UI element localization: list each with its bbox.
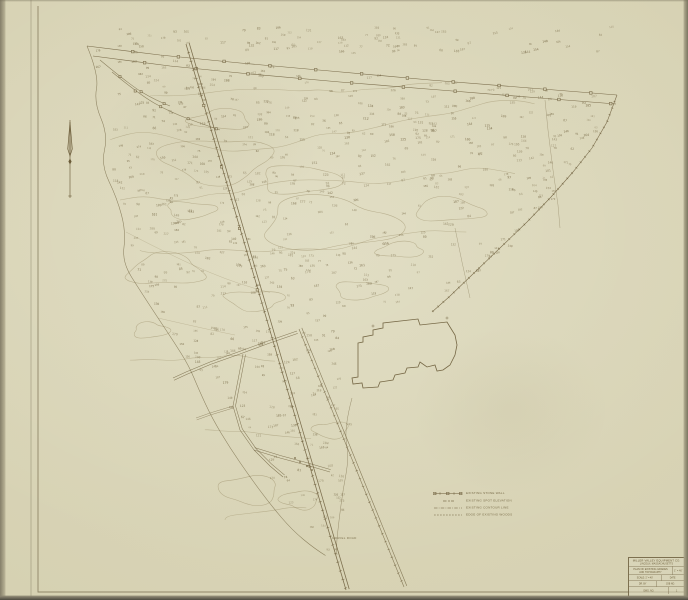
- svg-text:119: 119: [571, 105, 577, 109]
- svg-text:119: 119: [308, 46, 313, 50]
- svg-text:117: 117: [290, 371, 296, 375]
- svg-text:110: 110: [242, 280, 248, 284]
- svg-text:89: 89: [264, 121, 268, 125]
- svg-text:148: 148: [542, 39, 548, 44]
- svg-text:179: 179: [551, 197, 556, 201]
- svg-text:169: 169: [208, 160, 213, 163]
- svg-text:81: 81: [123, 203, 127, 206]
- svg-text:128: 128: [317, 146, 322, 150]
- svg-text:134: 134: [145, 74, 151, 79]
- svg-text:68: 68: [431, 173, 435, 177]
- svg-text:125: 125: [351, 52, 356, 55]
- svg-text:160: 160: [329, 347, 335, 352]
- svg-text:178: 178: [150, 158, 155, 162]
- svg-text:149: 149: [173, 213, 179, 218]
- svg-text:167: 167: [444, 289, 450, 293]
- svg-text:166: 166: [339, 49, 345, 53]
- svg-text:76: 76: [470, 151, 474, 155]
- svg-text:111: 111: [425, 112, 431, 117]
- svg-text:98: 98: [291, 173, 295, 177]
- svg-text:85: 85: [275, 190, 279, 194]
- svg-text:171: 171: [381, 122, 386, 126]
- svg-text:63: 63: [457, 280, 461, 284]
- svg-text:122: 122: [287, 30, 292, 35]
- svg-text:76: 76: [192, 269, 196, 273]
- svg-text:185: 185: [401, 169, 407, 174]
- svg-text:160: 160: [310, 526, 315, 529]
- svg-text:170: 170: [304, 81, 309, 85]
- svg-text:165: 165: [384, 163, 390, 168]
- svg-text:179: 179: [223, 380, 229, 384]
- svg-text:136: 136: [521, 50, 527, 55]
- svg-text:105: 105: [489, 183, 495, 187]
- legend-row: EXISTING SPOT ELEVATION: [433, 498, 551, 505]
- svg-text:99: 99: [543, 164, 547, 168]
- svg-text:122: 122: [529, 111, 534, 114]
- svg-text:64: 64: [599, 33, 603, 37]
- svg-text:168: 168: [298, 264, 303, 268]
- title-block-scale-value: 1" = 40': [674, 569, 682, 572]
- svg-text:143: 143: [269, 280, 275, 285]
- svg-text:144: 144: [255, 365, 260, 369]
- legend-label: EXISTING SPOT ELEVATION: [466, 500, 512, 503]
- svg-text:164: 164: [429, 29, 434, 32]
- svg-text:75: 75: [197, 149, 201, 153]
- svg-text:96: 96: [275, 175, 279, 178]
- svg-text:175: 175: [243, 325, 248, 329]
- svg-text:111: 111: [171, 158, 177, 163]
- title-block-company-line2: LINCOLN, MASSACHUSETTS: [640, 562, 673, 565]
- svg-text:132: 132: [451, 242, 457, 246]
- svg-text:72: 72: [354, 266, 358, 270]
- svg-text:123: 123: [240, 404, 246, 408]
- svg-text:66: 66: [152, 126, 156, 130]
- svg-text:86: 86: [247, 41, 251, 45]
- svg-text:180: 180: [460, 201, 465, 205]
- svg-text:158: 158: [139, 44, 144, 48]
- svg-text:155: 155: [133, 41, 139, 45]
- svg-text:183: 183: [341, 37, 347, 42]
- svg-text:67: 67: [283, 413, 287, 417]
- svg-text:159: 159: [178, 101, 184, 106]
- svg-text:120: 120: [386, 108, 391, 112]
- svg-text:71: 71: [128, 153, 132, 157]
- svg-text:169: 169: [160, 311, 165, 315]
- svg-text:73: 73: [263, 208, 267, 212]
- svg-text:166: 166: [514, 143, 520, 147]
- svg-text:127: 127: [472, 117, 477, 120]
- spot-elevation-symbol: [433, 499, 466, 504]
- svg-text:86: 86: [529, 43, 533, 46]
- svg-text:67: 67: [241, 415, 245, 419]
- stone-wall-line-symbol: [433, 490, 466, 496]
- svg-text:168: 168: [291, 201, 297, 205]
- legend-label: EXISTING CONTOUR LINE: [466, 507, 509, 510]
- svg-text:80: 80: [253, 86, 257, 90]
- svg-text:175: 175: [310, 264, 315, 268]
- svg-text:179: 179: [318, 479, 324, 483]
- svg-text:122: 122: [336, 496, 341, 499]
- svg-text:146: 146: [563, 129, 569, 134]
- svg-text:109: 109: [156, 203, 162, 207]
- svg-text:159: 159: [549, 112, 555, 117]
- svg-text:137: 137: [359, 171, 365, 176]
- legend-row: EXISTING CONTOUR LINE: [433, 505, 551, 512]
- svg-text:126: 126: [333, 492, 339, 497]
- svg-text:138: 138: [257, 112, 263, 116]
- svg-text:85: 85: [146, 101, 150, 105]
- svg-text:136: 136: [332, 203, 338, 208]
- svg-text:142: 142: [135, 102, 141, 106]
- svg-text:96: 96: [397, 49, 401, 53]
- svg-text:183: 183: [454, 49, 460, 53]
- svg-text:103: 103: [399, 105, 405, 109]
- svg-text:83: 83: [205, 37, 209, 40]
- svg-text:85: 85: [179, 267, 183, 271]
- svg-text:88: 88: [112, 168, 116, 172]
- svg-text:69: 69: [342, 304, 346, 308]
- svg-text:102: 102: [138, 72, 143, 76]
- svg-text:164: 164: [467, 122, 473, 127]
- svg-text:93: 93: [291, 303, 295, 307]
- svg-text:109: 109: [501, 114, 507, 119]
- svg-text:166: 166: [275, 25, 281, 30]
- svg-text:154: 154: [556, 39, 562, 44]
- svg-text:172: 172: [477, 151, 482, 155]
- svg-text:87: 87: [467, 41, 471, 46]
- svg-text:186: 186: [117, 60, 122, 64]
- svg-text:107: 107: [431, 129, 437, 133]
- svg-text:162: 162: [255, 41, 261, 46]
- svg-text:115: 115: [247, 179, 253, 184]
- svg-text:167: 167: [460, 47, 466, 52]
- svg-text:77: 77: [359, 45, 363, 49]
- svg-text:182: 182: [174, 228, 179, 232]
- svg-text:182: 182: [255, 171, 261, 175]
- svg-text:180: 180: [330, 516, 335, 519]
- svg-text:67: 67: [563, 118, 567, 123]
- svg-text:179: 179: [485, 254, 491, 258]
- svg-text:82: 82: [182, 222, 186, 226]
- svg-text:151: 151: [311, 161, 317, 165]
- svg-text:169: 169: [128, 175, 134, 180]
- svg-text:63: 63: [358, 164, 362, 168]
- svg-text:65: 65: [339, 121, 343, 125]
- svg-text:149: 149: [233, 241, 238, 245]
- svg-text:119: 119: [200, 122, 206, 126]
- svg-text:106: 106: [180, 144, 185, 148]
- svg-text:186: 186: [593, 129, 599, 133]
- svg-text:186: 186: [193, 330, 198, 333]
- svg-text:124: 124: [508, 27, 513, 31]
- svg-text:131: 131: [248, 135, 253, 139]
- svg-text:164: 164: [532, 183, 537, 187]
- svg-text:186: 186: [189, 85, 195, 90]
- svg-text:90: 90: [136, 202, 140, 206]
- svg-text:62: 62: [550, 175, 554, 179]
- svg-text:178: 178: [275, 128, 280, 132]
- svg-text:154: 154: [221, 114, 227, 118]
- boundary-traverse-lines: [87, 46, 617, 130]
- title-block-job-cell: JOB NO.: [666, 583, 675, 586]
- svg-text:63: 63: [186, 63, 190, 67]
- svg-text:90: 90: [164, 91, 168, 95]
- svg-text:66: 66: [439, 48, 443, 53]
- svg-text:123: 123: [539, 194, 544, 197]
- svg-text:77: 77: [318, 259, 321, 263]
- svg-text:124: 124: [383, 35, 389, 39]
- svg-text:75: 75: [278, 269, 282, 273]
- svg-text:70: 70: [525, 146, 529, 150]
- svg-text:182: 182: [283, 238, 288, 241]
- svg-text:120: 120: [348, 94, 353, 98]
- svg-text:184: 184: [446, 282, 451, 285]
- svg-text:134: 134: [277, 285, 283, 289]
- svg-text:155: 155: [423, 184, 428, 188]
- svg-text:155: 155: [204, 170, 210, 175]
- svg-text:83: 83: [193, 319, 197, 323]
- svg-text:103: 103: [253, 265, 258, 268]
- svg-text:161: 161: [260, 69, 266, 73]
- svg-text:140: 140: [507, 244, 513, 249]
- svg-text:98: 98: [214, 117, 218, 121]
- svg-text:155: 155: [451, 116, 456, 120]
- svg-text:111: 111: [202, 305, 208, 310]
- svg-text:75: 75: [309, 200, 313, 204]
- svg-text:62: 62: [136, 155, 140, 159]
- svg-text:96: 96: [512, 188, 516, 192]
- svg-text:150: 150: [280, 33, 286, 37]
- svg-text:165: 165: [314, 339, 319, 342]
- svg-text:84: 84: [325, 446, 329, 449]
- svg-text:83: 83: [196, 304, 200, 308]
- svg-text:177: 177: [300, 199, 306, 204]
- svg-text:142: 142: [117, 181, 123, 185]
- svg-text:185: 185: [447, 177, 452, 181]
- svg-text:107: 107: [431, 94, 437, 99]
- svg-text:176: 176: [280, 155, 285, 159]
- svg-text:186: 186: [358, 101, 364, 105]
- svg-text:64: 64: [248, 426, 252, 429]
- svg-text:126: 126: [223, 186, 228, 190]
- svg-text:136: 136: [348, 260, 354, 265]
- svg-text:155: 155: [299, 138, 305, 142]
- svg-text:130: 130: [334, 113, 339, 117]
- svg-text:121: 121: [551, 143, 557, 148]
- svg-text:142: 142: [361, 148, 366, 152]
- svg-text:113: 113: [516, 158, 522, 162]
- svg-text:89: 89: [245, 48, 249, 52]
- svg-text:85: 85: [174, 285, 178, 289]
- svg-text:149: 149: [261, 179, 267, 184]
- svg-text:81: 81: [297, 468, 301, 472]
- svg-text:75: 75: [283, 267, 287, 271]
- svg-text:82: 82: [210, 332, 214, 336]
- svg-text:110: 110: [410, 263, 416, 268]
- svg-text:180: 180: [250, 291, 256, 295]
- svg-text:120: 120: [526, 176, 531, 181]
- svg-text:80: 80: [242, 192, 246, 196]
- svg-text:147: 147: [332, 129, 337, 133]
- svg-text:168: 168: [319, 445, 325, 450]
- svg-text:110: 110: [558, 93, 564, 97]
- svg-text:64: 64: [287, 478, 291, 482]
- svg-text:131: 131: [418, 120, 424, 124]
- woods-edge-symbol: [433, 513, 466, 518]
- svg-text:121: 121: [256, 433, 262, 437]
- svg-text:75: 75: [131, 36, 135, 40]
- svg-text:173: 173: [356, 284, 362, 289]
- svg-text:86: 86: [451, 111, 455, 115]
- svg-text:154: 154: [310, 114, 315, 118]
- svg-text:63: 63: [345, 222, 349, 226]
- svg-text:106: 106: [264, 130, 269, 134]
- svg-text:109: 109: [366, 282, 372, 286]
- svg-text:174: 174: [306, 268, 312, 273]
- title-block-sheet-number: 1: [676, 589, 677, 592]
- svg-text:76: 76: [392, 157, 396, 161]
- svg-text:65: 65: [243, 171, 247, 175]
- svg-text:173: 173: [309, 253, 315, 258]
- svg-text:69: 69: [479, 242, 483, 246]
- svg-text:105: 105: [347, 422, 353, 427]
- svg-text:71: 71: [310, 443, 314, 447]
- svg-text:156: 156: [383, 241, 389, 245]
- svg-text:122: 122: [278, 245, 284, 250]
- svg-text:181: 181: [181, 240, 186, 244]
- svg-text:112: 112: [344, 43, 349, 47]
- svg-text:90: 90: [285, 152, 289, 156]
- svg-text:167: 167: [95, 65, 101, 69]
- svg-text:80: 80: [147, 80, 151, 84]
- svg-text:150: 150: [306, 333, 312, 337]
- svg-text:186: 186: [389, 124, 395, 128]
- svg-text:173: 173: [173, 193, 179, 198]
- svg-text:62: 62: [256, 149, 260, 153]
- svg-text:89: 89: [262, 373, 266, 377]
- svg-text:80: 80: [227, 281, 231, 285]
- svg-text:79: 79: [223, 139, 227, 143]
- svg-text:181: 181: [216, 229, 222, 233]
- svg-text:99: 99: [270, 155, 274, 159]
- svg-text:134: 134: [367, 104, 373, 109]
- svg-text:118: 118: [269, 132, 275, 136]
- svg-text:74: 74: [487, 88, 491, 92]
- svg-text:102: 102: [195, 137, 200, 141]
- svg-text:122: 122: [333, 386, 338, 389]
- svg-text:163: 163: [344, 141, 349, 145]
- svg-text:137: 137: [464, 185, 469, 189]
- svg-text:76: 76: [322, 119, 326, 123]
- svg-text:180: 180: [464, 137, 470, 142]
- svg-text:155: 155: [174, 241, 179, 245]
- svg-text:65: 65: [256, 101, 260, 105]
- svg-text:143: 143: [552, 137, 558, 141]
- svg-text:99: 99: [229, 74, 233, 78]
- svg-text:178: 178: [144, 289, 150, 294]
- svg-text:179: 179: [172, 332, 178, 337]
- svg-text:117: 117: [220, 291, 226, 295]
- svg-text:167: 167: [236, 284, 241, 287]
- svg-text:117: 117: [220, 40, 226, 44]
- svg-text:146: 146: [245, 417, 251, 421]
- svg-text:113: 113: [492, 31, 498, 36]
- svg-text:131: 131: [396, 35, 401, 39]
- svg-text:97: 97: [491, 142, 495, 146]
- svg-text:168: 168: [200, 162, 206, 166]
- svg-text:87: 87: [596, 49, 600, 53]
- svg-text:159: 159: [255, 329, 261, 334]
- svg-text:127: 127: [219, 250, 225, 255]
- svg-text:150: 150: [160, 155, 166, 160]
- svg-text:183: 183: [113, 127, 119, 131]
- spot-elevation-marks: 1141441151831691069976821021141796210111…: [95, 25, 614, 552]
- svg-text:102: 102: [292, 357, 298, 362]
- svg-text:166: 166: [161, 66, 166, 70]
- svg-text:125: 125: [400, 138, 406, 142]
- svg-text:66: 66: [513, 154, 517, 158]
- svg-text:136: 136: [338, 474, 344, 478]
- svg-text:130: 130: [344, 135, 350, 140]
- svg-text:63: 63: [291, 276, 295, 280]
- title-block-drawing-title-line2: AND TOPOGRAPHY: [639, 571, 662, 574]
- svg-text:187: 187: [374, 280, 379, 283]
- svg-text:154: 154: [565, 44, 571, 49]
- svg-text:78: 78: [160, 170, 164, 174]
- svg-text:184: 184: [317, 210, 323, 214]
- svg-text:183: 183: [243, 125, 249, 130]
- svg-text:110: 110: [316, 388, 322, 392]
- svg-text:74: 74: [161, 119, 165, 123]
- svg-text:120: 120: [252, 255, 258, 260]
- svg-text:185: 185: [305, 258, 310, 262]
- svg-text:80: 80: [141, 262, 145, 266]
- svg-text:149: 149: [586, 119, 591, 123]
- road-label: GRAVEL ROAD: [332, 536, 357, 540]
- scanned-survey-sheet: 1141441151831691069976821021141796210111…: [0, 0, 688, 600]
- svg-text:153: 153: [363, 273, 369, 278]
- svg-text:64: 64: [285, 135, 289, 139]
- svg-text:131: 131: [306, 28, 312, 33]
- svg-text:80: 80: [293, 116, 297, 120]
- svg-text:101: 101: [152, 213, 158, 217]
- svg-text:118: 118: [286, 115, 291, 118]
- svg-text:116: 116: [266, 100, 272, 105]
- svg-text:150: 150: [389, 133, 395, 137]
- svg-text:64: 64: [119, 27, 123, 31]
- svg-text:114: 114: [220, 284, 226, 288]
- svg-text:91: 91: [152, 108, 156, 112]
- svg-text:187: 187: [591, 94, 597, 98]
- svg-text:136: 136: [154, 302, 160, 307]
- svg-text:72: 72: [342, 181, 346, 185]
- svg-text:124: 124: [153, 78, 159, 82]
- svg-text:92: 92: [436, 140, 440, 144]
- svg-text:63: 63: [314, 97, 318, 101]
- svg-text:168: 168: [327, 464, 333, 469]
- contour-line-symbol: [433, 506, 466, 511]
- svg-text:93: 93: [326, 547, 330, 551]
- svg-text:83: 83: [309, 297, 313, 301]
- svg-text:90: 90: [392, 49, 396, 53]
- svg-text:183: 183: [441, 29, 447, 34]
- legend-label: EDGE OF EXISTING WOODS: [466, 514, 512, 517]
- svg-text:146: 146: [285, 430, 291, 435]
- svg-text:94: 94: [413, 120, 417, 124]
- svg-text:150: 150: [557, 133, 563, 138]
- svg-text:144: 144: [192, 155, 198, 159]
- svg-text:187: 187: [510, 211, 515, 214]
